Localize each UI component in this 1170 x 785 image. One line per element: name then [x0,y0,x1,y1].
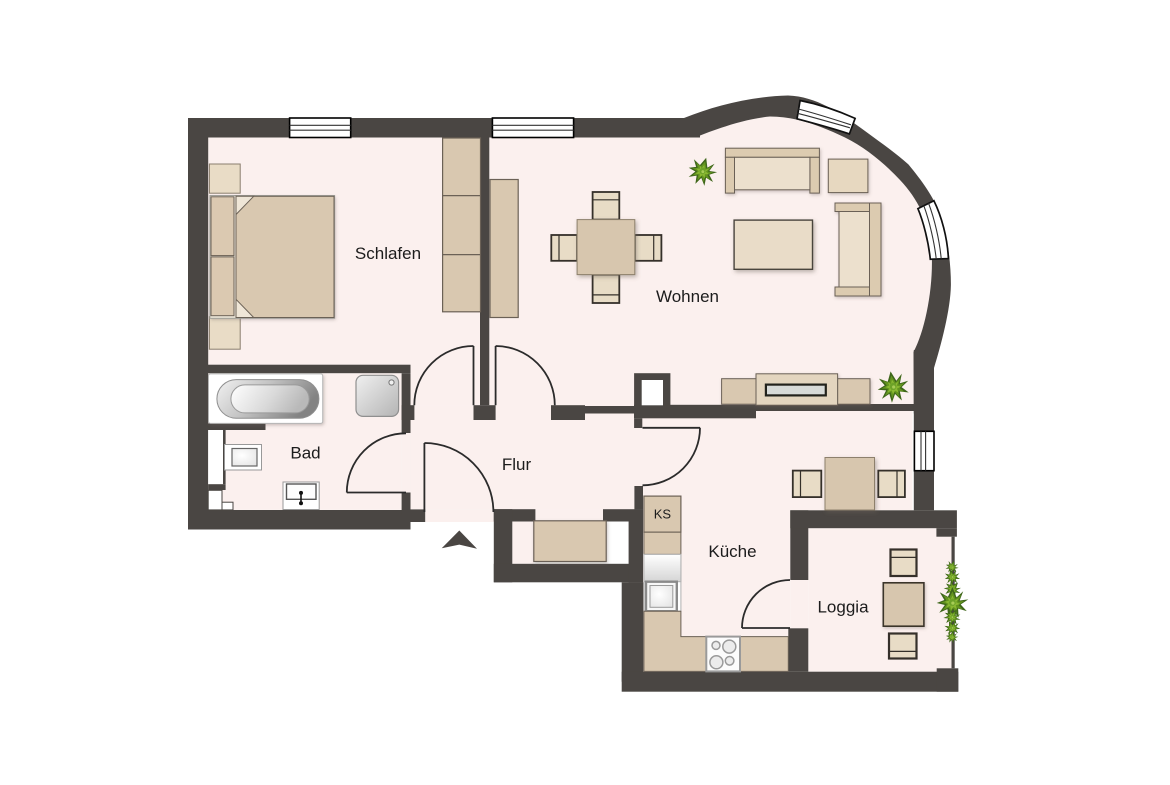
svg-text:Bad: Bad [290,444,320,463]
svg-text:Schlafen: Schlafen [355,244,421,263]
svg-text:Wohnen: Wohnen [656,287,719,306]
svg-text:Küche: Küche [708,542,756,561]
svg-text:Flur: Flur [502,455,532,474]
svg-text:Loggia: Loggia [817,598,869,617]
svg-text:KS: KS [654,507,672,522]
